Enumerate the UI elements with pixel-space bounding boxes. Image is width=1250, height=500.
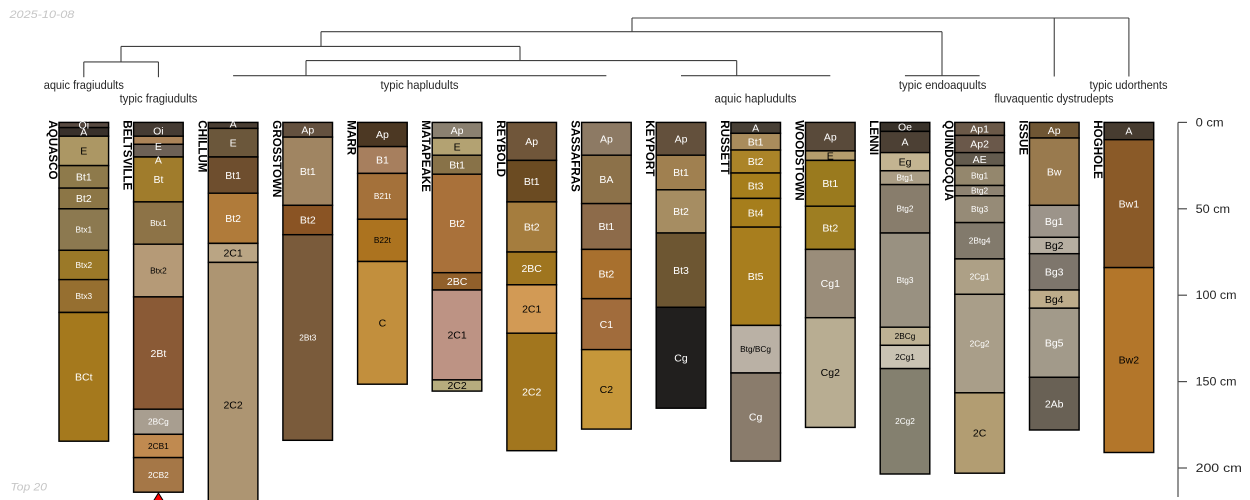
svg-text:2C2: 2C2 <box>447 380 466 392</box>
svg-text:Bt3: Bt3 <box>748 180 764 192</box>
svg-text:Btx1: Btx1 <box>150 218 167 228</box>
svg-text:Ap1: Ap1 <box>970 124 989 136</box>
svg-text:2Cg2: 2Cg2 <box>970 339 990 349</box>
svg-text:AQUASCO: AQUASCO <box>46 120 59 179</box>
svg-text:WOODSTOWN: WOODSTOWN <box>793 120 806 200</box>
svg-text:Bg3: Bg3 <box>1045 267 1064 279</box>
svg-text:typic fragiudults: typic fragiudults <box>120 92 198 106</box>
svg-text:fluvaquentic dystrudepts: fluvaquentic dystrudepts <box>994 91 1113 105</box>
svg-text:2Btg4: 2Btg4 <box>969 236 991 246</box>
svg-text:Btx2: Btx2 <box>150 266 167 276</box>
svg-text:Ap: Ap <box>1048 125 1061 137</box>
svg-text:LENNI: LENNI <box>867 120 880 155</box>
svg-text:Oi: Oi <box>153 126 164 138</box>
svg-text:200 cm: 200 cm <box>1196 461 1242 475</box>
svg-text:aquic hapludults: aquic hapludults <box>715 91 797 105</box>
svg-text:2Bt: 2Bt <box>151 348 167 360</box>
svg-text:Cg1: Cg1 <box>821 278 840 290</box>
svg-text:Bt2: Bt2 <box>822 223 838 235</box>
svg-text:2C: 2C <box>973 428 987 440</box>
svg-text:Btx2: Btx2 <box>75 260 92 270</box>
svg-text:Ap: Ap <box>600 134 613 146</box>
svg-text:2BC: 2BC <box>447 276 468 288</box>
svg-text:Cg2: Cg2 <box>821 367 840 379</box>
svg-text:Bg4: Bg4 <box>1045 294 1064 306</box>
svg-text:Bt1: Bt1 <box>673 167 689 179</box>
svg-text:Bt2: Bt2 <box>524 222 540 234</box>
svg-text:Ap: Ap <box>525 136 538 148</box>
svg-text:Btx1: Btx1 <box>75 224 92 234</box>
svg-text:Bw1: Bw1 <box>1119 198 1140 210</box>
svg-text:Bg5: Bg5 <box>1045 337 1064 349</box>
svg-text:KEYPORT: KEYPORT <box>643 120 656 176</box>
svg-text:2C1: 2C1 <box>447 330 466 342</box>
svg-text:Btg/BCg: Btg/BCg <box>740 344 771 354</box>
svg-text:SASSAFRAS: SASSAFRAS <box>569 120 582 192</box>
svg-text:2025-10-08: 2025-10-08 <box>8 9 74 21</box>
svg-text:C1: C1 <box>600 319 614 331</box>
svg-text:2CB2: 2CB2 <box>148 470 169 480</box>
svg-text:Cg: Cg <box>749 412 763 424</box>
svg-text:2Bt3: 2Bt3 <box>299 332 316 342</box>
svg-text:Btg1: Btg1 <box>971 170 988 180</box>
svg-text:2C2: 2C2 <box>223 400 242 412</box>
svg-text:150 cm: 150 cm <box>1196 375 1237 389</box>
svg-text:B22t: B22t <box>374 235 392 245</box>
svg-text:Bw2: Bw2 <box>1119 355 1140 367</box>
svg-text:2Ab: 2Ab <box>1045 398 1064 410</box>
svg-text:Bt5: Bt5 <box>748 271 764 283</box>
svg-text:Ap2: Ap2 <box>970 139 989 151</box>
svg-text:2BC: 2BC <box>521 263 542 275</box>
svg-text:GROSSTOWN: GROSSTOWN <box>270 120 283 197</box>
svg-text:Bt: Bt <box>153 174 163 186</box>
svg-text:AE: AE <box>973 154 987 166</box>
svg-text:2CB1: 2CB1 <box>148 441 169 451</box>
svg-text:2BCg: 2BCg <box>148 417 169 427</box>
svg-text:B1: B1 <box>376 155 389 167</box>
svg-text:A: A <box>752 123 759 135</box>
svg-text:Bt1: Bt1 <box>748 136 764 148</box>
svg-text:2Cg1: 2Cg1 <box>970 272 990 282</box>
svg-text:2C1: 2C1 <box>223 248 242 260</box>
svg-text:Bt1: Bt1 <box>76 172 92 184</box>
svg-text:Bt2: Bt2 <box>748 156 764 168</box>
svg-text:Bt2: Bt2 <box>449 218 465 230</box>
svg-text:Btg1: Btg1 <box>896 173 913 183</box>
svg-text:Ap: Ap <box>824 131 837 143</box>
svg-text:Cg: Cg <box>674 353 688 365</box>
svg-text:E: E <box>230 137 237 149</box>
svg-text:A: A <box>80 127 87 139</box>
svg-text:Bt2: Bt2 <box>225 213 241 225</box>
svg-text:HOGHOLE: HOGHOLE <box>1091 120 1104 179</box>
svg-text:Oe: Oe <box>898 122 912 134</box>
svg-text:Bt1: Bt1 <box>225 170 241 182</box>
svg-text:Top 20: Top 20 <box>11 482 47 494</box>
svg-text:C: C <box>379 318 387 330</box>
svg-text:50 cm: 50 cm <box>1196 202 1231 216</box>
svg-text:Ap: Ap <box>376 129 389 141</box>
svg-text:Ap: Ap <box>451 125 464 137</box>
svg-text:Bg2: Bg2 <box>1045 240 1064 252</box>
svg-text:Bt1: Bt1 <box>300 166 316 178</box>
svg-text:typic udorthents: typic udorthents <box>1090 78 1168 92</box>
svg-text:Bt1: Bt1 <box>822 178 838 190</box>
svg-text:Bt2: Bt2 <box>300 215 316 227</box>
svg-text:C2: C2 <box>600 384 614 396</box>
svg-text:MATAPEAKE: MATAPEAKE <box>419 120 432 192</box>
svg-text:Ap: Ap <box>675 134 688 146</box>
svg-text:A: A <box>155 154 162 166</box>
svg-text:A: A <box>1125 126 1132 138</box>
svg-text:E: E <box>454 141 461 153</box>
svg-text:Bt3: Bt3 <box>673 265 689 277</box>
svg-text:BELTSVILLE: BELTSVILLE <box>121 120 134 190</box>
svg-text:100 cm: 100 cm <box>1196 288 1237 302</box>
svg-text:aquic fragiudults: aquic fragiudults <box>44 78 124 92</box>
svg-text:ISSUE: ISSUE <box>1017 120 1030 155</box>
svg-text:BA: BA <box>599 174 613 186</box>
svg-text:2C2: 2C2 <box>522 387 541 399</box>
svg-text:typic hapludults: typic hapludults <box>381 78 459 92</box>
svg-text:RUSSETT: RUSSETT <box>718 120 731 174</box>
svg-text:Bt2: Bt2 <box>673 206 689 218</box>
svg-text:B21t: B21t <box>374 191 392 201</box>
svg-text:Btg3: Btg3 <box>896 275 913 285</box>
svg-text:Btx3: Btx3 <box>75 291 92 301</box>
svg-text:2C1: 2C1 <box>522 304 541 316</box>
svg-text:Btg2: Btg2 <box>896 204 913 214</box>
svg-text:Bt1: Bt1 <box>599 221 615 233</box>
svg-text:Bt2: Bt2 <box>76 193 92 205</box>
svg-text:Ap: Ap <box>301 124 314 136</box>
svg-text:typic endoaquults: typic endoaquults <box>899 78 987 92</box>
svg-text:REYBOLD: REYBOLD <box>494 120 507 177</box>
svg-text:Bt2: Bt2 <box>599 269 615 281</box>
svg-text:2Cg2: 2Cg2 <box>895 416 915 426</box>
svg-text:Btg3: Btg3 <box>971 204 988 214</box>
svg-text:E: E <box>827 150 834 162</box>
svg-text:A: A <box>230 119 237 131</box>
svg-text:E: E <box>80 146 87 158</box>
svg-text:0 cm: 0 cm <box>1196 115 1224 129</box>
svg-text:BCt: BCt <box>75 372 93 384</box>
svg-text:Bt1: Bt1 <box>449 159 465 171</box>
svg-text:Eg: Eg <box>899 156 912 168</box>
svg-text:Bt4: Bt4 <box>748 208 764 220</box>
svg-text:CHILLUM: CHILLUM <box>195 120 208 172</box>
svg-text:MARR: MARR <box>345 120 358 155</box>
svg-text:A: A <box>901 137 908 149</box>
svg-text:2Cg1: 2Cg1 <box>895 352 915 362</box>
svg-text:E: E <box>155 141 162 153</box>
svg-text:Bg1: Bg1 <box>1045 216 1064 228</box>
svg-text:QUINDOCQUA: QUINDOCQUA <box>942 120 955 201</box>
svg-text:Btg2: Btg2 <box>971 186 988 196</box>
svg-text:Bt1: Bt1 <box>524 176 540 188</box>
svg-text:2BCg: 2BCg <box>895 331 916 341</box>
svg-text:Bw: Bw <box>1047 166 1062 178</box>
